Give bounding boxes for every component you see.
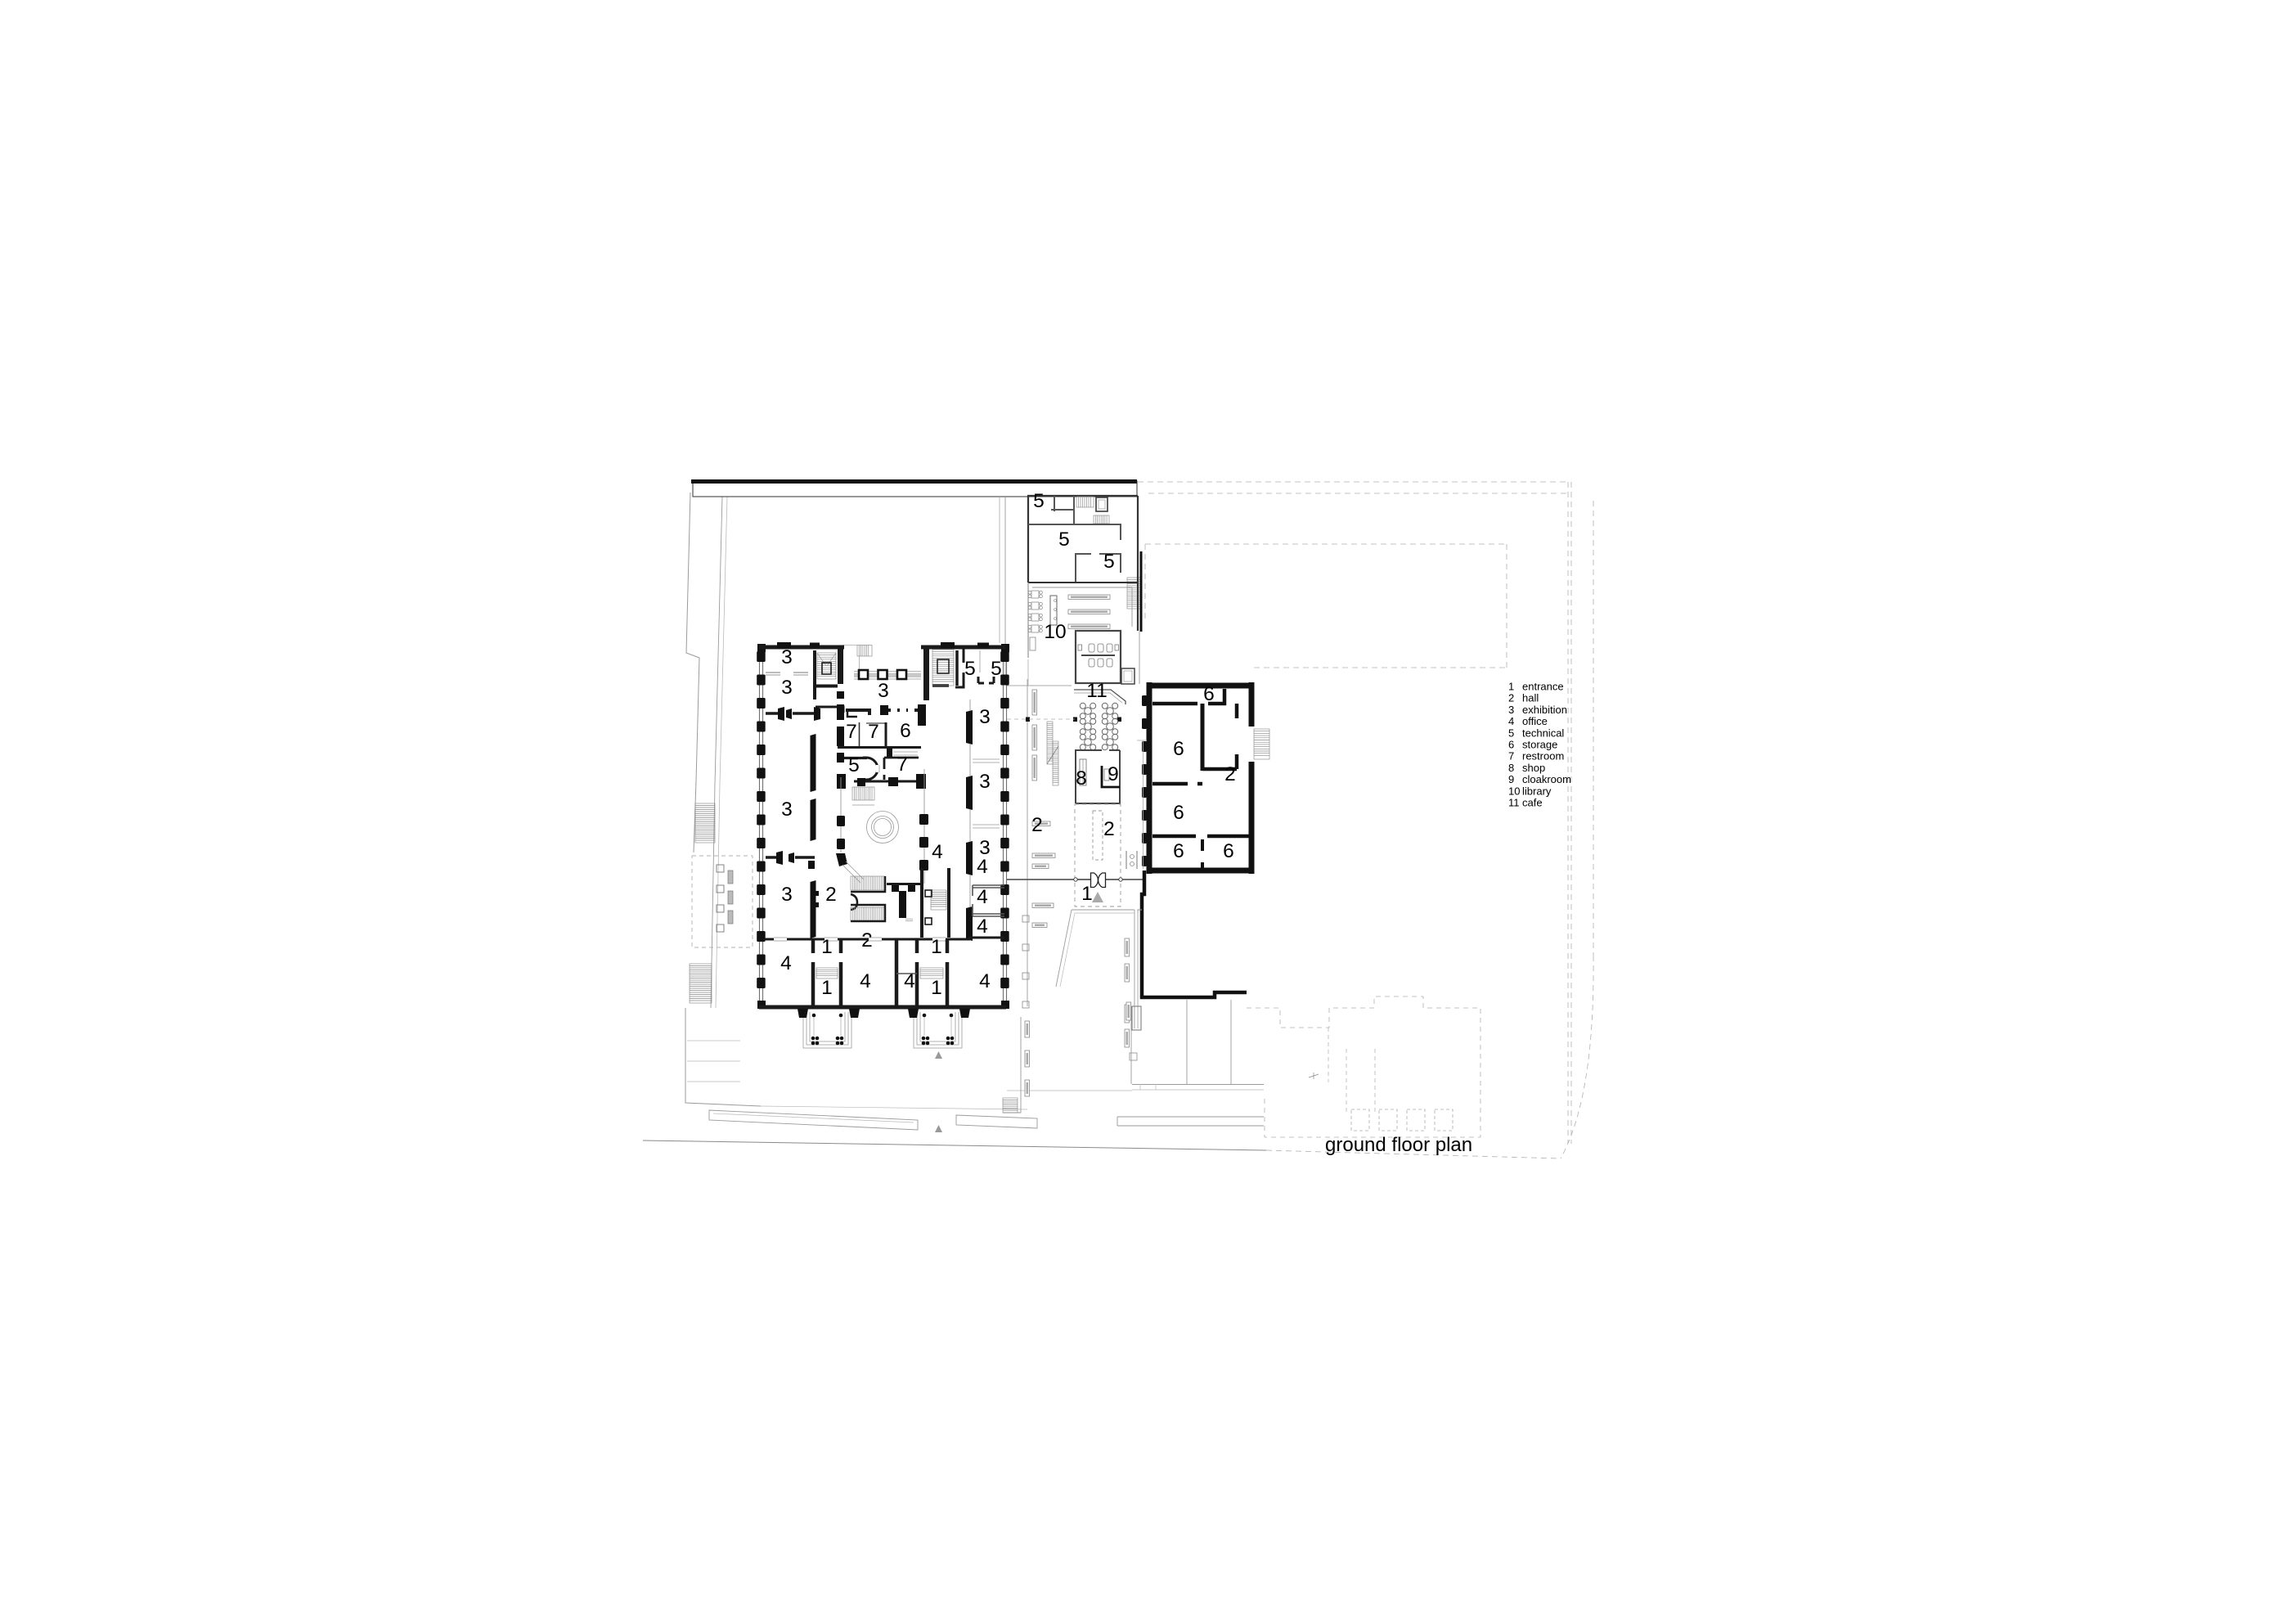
- svg-text:7: 7: [868, 721, 879, 743]
- svg-text:4: 4: [904, 970, 915, 992]
- svg-text:ground floor plan: ground floor plan: [1325, 1134, 1472, 1156]
- svg-text:6: 6: [1203, 683, 1215, 705]
- svg-text:4: 4: [1508, 715, 1514, 727]
- svg-text:1: 1: [1081, 883, 1093, 905]
- svg-text:6: 6: [1173, 802, 1184, 824]
- svg-text:3: 3: [979, 706, 991, 728]
- svg-text:library: library: [1522, 785, 1552, 797]
- svg-text:6: 6: [900, 720, 911, 742]
- svg-text:1: 1: [931, 977, 942, 999]
- svg-text:1: 1: [1508, 681, 1514, 693]
- svg-text:1: 1: [931, 936, 942, 958]
- svg-text:6: 6: [1173, 738, 1184, 760]
- svg-text:5: 5: [1508, 727, 1514, 739]
- svg-text:shop: shop: [1522, 762, 1545, 774]
- svg-text:6: 6: [1223, 840, 1234, 862]
- svg-text:3: 3: [1508, 704, 1514, 716]
- svg-text:3: 3: [781, 677, 793, 699]
- svg-text:11: 11: [1508, 797, 1520, 809]
- svg-text:cloakroom: cloakroom: [1522, 773, 1571, 785]
- svg-text:technical: technical: [1522, 727, 1564, 739]
- svg-text:hall: hall: [1522, 692, 1539, 704]
- svg-text:4: 4: [780, 952, 792, 974]
- svg-text:exhibition: exhibition: [1522, 704, 1567, 716]
- svg-text:6: 6: [1173, 840, 1184, 862]
- svg-text:4: 4: [860, 970, 871, 992]
- svg-text:7: 7: [846, 721, 857, 743]
- svg-text:6: 6: [1508, 739, 1514, 751]
- svg-text:9: 9: [1508, 773, 1514, 785]
- svg-text:restroom: restroom: [1522, 750, 1564, 763]
- svg-text:1: 1: [821, 977, 833, 999]
- svg-text:3: 3: [781, 799, 793, 821]
- svg-text:storage: storage: [1522, 739, 1557, 751]
- svg-text:11: 11: [1086, 680, 1107, 702]
- svg-text:2: 2: [825, 884, 837, 906]
- svg-text:4: 4: [932, 841, 943, 863]
- svg-text:5: 5: [964, 658, 976, 680]
- svg-text:4: 4: [977, 856, 988, 878]
- svg-text:5: 5: [1103, 551, 1115, 573]
- svg-text:entrance: entrance: [1522, 681, 1564, 693]
- svg-text:5: 5: [991, 658, 1002, 680]
- svg-text:1: 1: [821, 936, 833, 958]
- svg-text:4: 4: [977, 915, 988, 938]
- svg-text:3: 3: [979, 771, 991, 793]
- svg-text:3: 3: [781, 646, 793, 668]
- svg-text:7: 7: [1508, 750, 1514, 763]
- svg-text:2: 2: [1508, 692, 1514, 704]
- svg-text:2: 2: [1103, 818, 1115, 840]
- svg-text:9: 9: [1108, 763, 1119, 785]
- svg-text:8: 8: [1508, 762, 1514, 774]
- svg-text:office: office: [1522, 715, 1548, 727]
- svg-text:10: 10: [1508, 785, 1520, 797]
- svg-text:5: 5: [1033, 490, 1045, 512]
- svg-text:4: 4: [977, 886, 988, 908]
- svg-text:7: 7: [896, 754, 908, 776]
- svg-text:2: 2: [1224, 763, 1236, 785]
- svg-text:2: 2: [1031, 814, 1043, 836]
- svg-text:3: 3: [878, 680, 889, 702]
- svg-text:3: 3: [781, 884, 793, 906]
- svg-text:5: 5: [848, 754, 860, 776]
- svg-text:10: 10: [1044, 621, 1066, 643]
- svg-text:4: 4: [979, 970, 991, 992]
- svg-text:5: 5: [1058, 529, 1070, 551]
- svg-text:8: 8: [1076, 767, 1087, 790]
- svg-text:cafe: cafe: [1522, 797, 1543, 809]
